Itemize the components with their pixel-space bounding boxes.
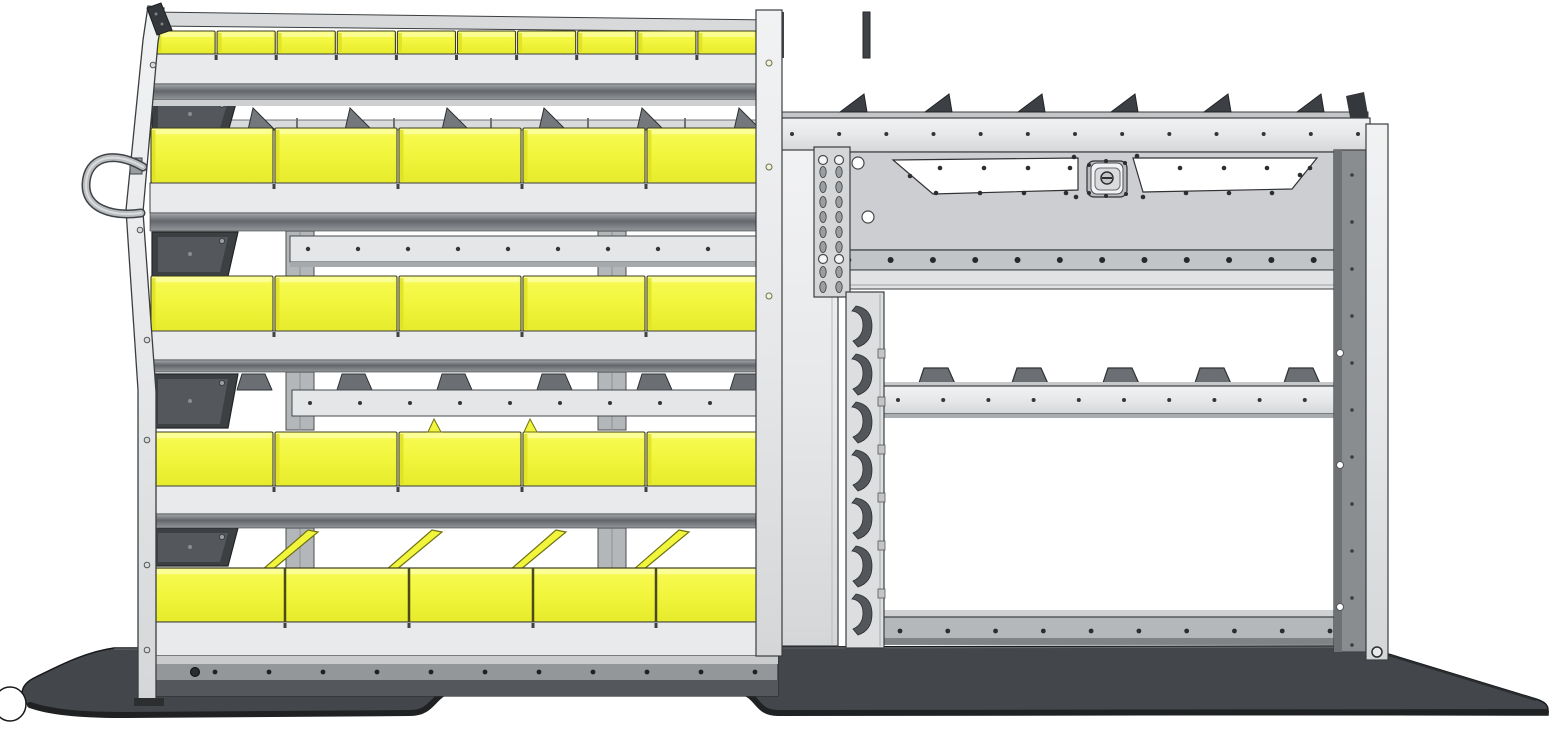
louver-hook-panel — [846, 292, 885, 648]
rear-mount-blade — [863, 12, 870, 58]
back-rail-row1 — [158, 108, 772, 130]
yellow-divider-fin — [386, 530, 442, 570]
mid-shelf — [880, 368, 1362, 418]
cad-render-viewport — [0, 0, 1566, 739]
rear-post — [1334, 150, 1366, 652]
divider-fin — [637, 108, 664, 130]
shelf-back-rail — [290, 236, 773, 267]
shelf-face-4 — [150, 486, 777, 528]
end-panel-left-unit — [756, 10, 782, 656]
yellow-divider-fin — [633, 530, 689, 570]
shelf-divider-tab — [537, 374, 572, 390]
bin-row-2 — [151, 128, 757, 183]
divider-fin — [345, 108, 372, 130]
front-post — [1366, 124, 1388, 660]
bin-row-3 — [151, 276, 757, 331]
slotted-track — [814, 147, 850, 297]
shelf-face-2 — [150, 183, 777, 231]
shelf-divider-tab — [337, 374, 372, 390]
top-rail-gussets — [840, 94, 1324, 112]
shelf-face-1 — [150, 54, 777, 106]
corner-bracket — [152, 528, 238, 566]
yellow-divider-fin — [510, 530, 566, 570]
corner-bracket — [152, 374, 238, 428]
panel-hole — [862, 211, 874, 223]
door-latch — [1087, 159, 1128, 198]
bin-row-1 — [157, 31, 756, 54]
right-shelf-unit-with-door-kit — [778, 12, 1388, 660]
divider-fin — [248, 108, 275, 130]
interior-post — [598, 528, 626, 568]
divider-fin — [442, 108, 469, 130]
base-rail — [150, 656, 778, 696]
corner-bracket — [152, 232, 238, 276]
van-shelving-cad-canvas — [0, 0, 1566, 739]
shelf-divider-tab — [437, 374, 472, 390]
shelf-face-5 — [150, 622, 777, 656]
wheel-well-notch — [0, 687, 26, 721]
shelf-divider-tab — [637, 374, 672, 390]
door-panel — [788, 152, 1368, 250]
door-rivet-rail — [788, 250, 1368, 270]
handle-cutout-right — [1133, 158, 1317, 192]
bottom-rail — [880, 610, 1352, 644]
divider-fin — [539, 108, 566, 130]
panel-hole — [852, 157, 864, 169]
shelf-divider-tab — [237, 374, 272, 390]
left-bin-shelving-unit — [126, 3, 784, 706]
bin-row-5-divided-tray — [150, 568, 758, 622]
bin-row-4 — [151, 419, 757, 486]
shelf-back-rail — [237, 374, 773, 416]
shelf-face-3 — [150, 331, 777, 372]
top-rail — [778, 118, 1370, 152]
